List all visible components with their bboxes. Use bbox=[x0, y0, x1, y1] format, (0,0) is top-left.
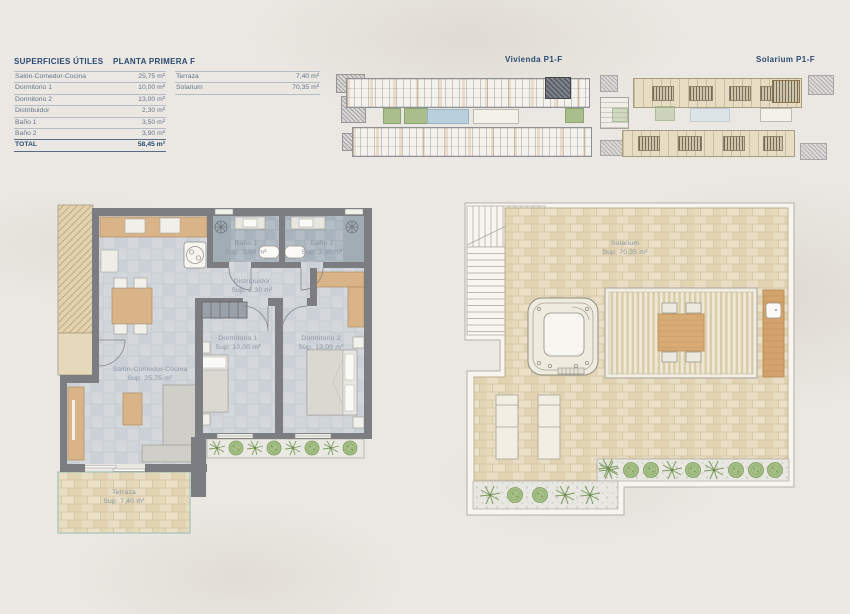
room-label-bano1: Baño 1 bbox=[235, 240, 258, 247]
floor-plan-vivienda: Baño 1 Sup: 3,50 m² Baño 2 Sup: 3,90 m² … bbox=[55, 200, 395, 540]
floor-plan-sheet: SUPERFICIES ÚTILES PLANTA PRIMERA F Saló… bbox=[0, 0, 850, 614]
svg-text:Sup: 10,00 m²: Sup: 10,00 m² bbox=[215, 344, 261, 351]
surfaces-panel: SUPERFICIES ÚTILES PLANTA PRIMERA F Saló… bbox=[14, 57, 322, 152]
chair bbox=[686, 303, 701, 313]
shower-icon bbox=[215, 221, 227, 233]
table-row: Baño 13,50 m² bbox=[14, 118, 166, 129]
svg-text:Sup: 25,75 m²: Sup: 25,75 m² bbox=[127, 375, 173, 382]
pergola bbox=[605, 288, 757, 378]
courtyard-garden bbox=[565, 108, 584, 123]
svg-text:Sup: 13,00 m²: Sup: 13,00 m² bbox=[298, 344, 344, 351]
sliding-door bbox=[85, 466, 145, 472]
plants-border bbox=[207, 439, 364, 458]
bathroom2-vanity bbox=[291, 217, 325, 229]
table-row: Dormitorio 110,00 m² bbox=[14, 83, 166, 94]
room-label-bano2: Baño 2 bbox=[311, 240, 334, 247]
surfaces-title: SUPERFICIES ÚTILES bbox=[14, 57, 113, 66]
sun-lounger bbox=[496, 395, 518, 459]
table-row: Salón-Comedor-Cocina25,75 m² bbox=[14, 72, 166, 83]
fridge bbox=[101, 250, 118, 272]
surfaces-titles: SUPERFICIES ÚTILES PLANTA PRIMERA F bbox=[14, 57, 322, 66]
garage-block bbox=[800, 143, 827, 160]
highlighted-unit-roof bbox=[772, 80, 800, 103]
chair bbox=[662, 303, 677, 313]
outdoor-table bbox=[658, 314, 704, 351]
coffee-table bbox=[123, 393, 142, 425]
surfaces-table: Salón-Comedor-Cocina25,75 m² Dormitorio … bbox=[14, 71, 166, 152]
courtyard-garden bbox=[655, 106, 675, 121]
roof-unit bbox=[652, 86, 674, 101]
surfaces-extra-table: Terraza7,40 m² Solarium70,35 m² bbox=[175, 71, 320, 95]
svg-text:Sup: 3,50 m²: Sup: 3,50 m² bbox=[225, 249, 267, 256]
minimap-solarium bbox=[600, 68, 845, 163]
table-row: Dormitorio 213,00 m² bbox=[14, 95, 166, 106]
roof-unit bbox=[638, 136, 660, 151]
roof-unit bbox=[678, 136, 702, 151]
room-label-distribuidor: Distribuidor bbox=[234, 278, 271, 285]
jacuzzi bbox=[528, 298, 598, 375]
room-label-terraza: Terraza bbox=[112, 489, 136, 496]
sideboard bbox=[68, 387, 84, 460]
building-wing-south bbox=[352, 127, 592, 157]
roof-unit bbox=[689, 86, 713, 101]
pool bbox=[427, 109, 469, 124]
room-label-dormitorio1: Dormitorio 1 bbox=[218, 335, 257, 342]
chair bbox=[662, 352, 677, 362]
svg-text:Sup: 70,35 m²: Sup: 70,35 m² bbox=[602, 249, 648, 256]
svg-text:Sup: 3,90 m²: Sup: 3,90 m² bbox=[301, 249, 343, 256]
courtyard-garden bbox=[404, 108, 428, 124]
vivienda-map-title: Vivienda P1-F bbox=[505, 55, 563, 64]
minimap-vivienda bbox=[333, 68, 595, 163]
planta-title: PLANTA PRIMERA F bbox=[113, 57, 195, 66]
floor-plan-solarium: Solarium Sup: 70,35 m² bbox=[460, 200, 795, 520]
table-row: Solarium70,35 m² bbox=[175, 83, 320, 94]
pool bbox=[690, 108, 730, 122]
highlighted-unit bbox=[545, 77, 571, 99]
chair bbox=[686, 352, 701, 362]
staircase bbox=[58, 205, 93, 375]
solarium-map-title: Solarium P1-F bbox=[756, 55, 815, 64]
bathroom1-vanity bbox=[235, 217, 265, 229]
shower-icon bbox=[346, 221, 358, 233]
table-row-total: TOTAL58,45 m² bbox=[14, 139, 166, 151]
courtyard-garden bbox=[612, 108, 628, 122]
svg-text:Sup: 7,40 m²: Sup: 7,40 m² bbox=[103, 498, 145, 505]
room-label-salon: Salón-Comedor-Cocina bbox=[112, 366, 187, 373]
wardrobe bbox=[202, 302, 247, 318]
sun-lounger bbox=[538, 395, 560, 459]
roof-unit bbox=[723, 136, 745, 151]
kitchen-counter bbox=[100, 217, 207, 237]
courtyard-path bbox=[473, 109, 519, 124]
roof-unit bbox=[729, 86, 751, 101]
room-label-dormitorio2: Dormitorio 2 bbox=[301, 335, 340, 342]
roof-wing-south bbox=[622, 130, 795, 157]
outdoor-shower-tray bbox=[766, 303, 781, 318]
svg-text:Sup: 2,30 m²: Sup: 2,30 m² bbox=[231, 287, 273, 294]
garage-block bbox=[600, 140, 624, 156]
garage-block bbox=[600, 75, 618, 92]
wood-deck bbox=[763, 290, 784, 377]
garage-block bbox=[808, 75, 834, 95]
courtyard-garden bbox=[383, 108, 401, 124]
courtyard-path bbox=[760, 108, 792, 122]
roof-unit bbox=[763, 136, 783, 151]
svg-text:Solarium: Solarium bbox=[611, 240, 640, 247]
shower2-tray bbox=[343, 216, 364, 262]
kitchen-sink-icon bbox=[184, 242, 206, 268]
table-row: Terraza7,40 m² bbox=[175, 72, 320, 83]
table-row: Distribuidor2,30 m² bbox=[14, 106, 166, 117]
